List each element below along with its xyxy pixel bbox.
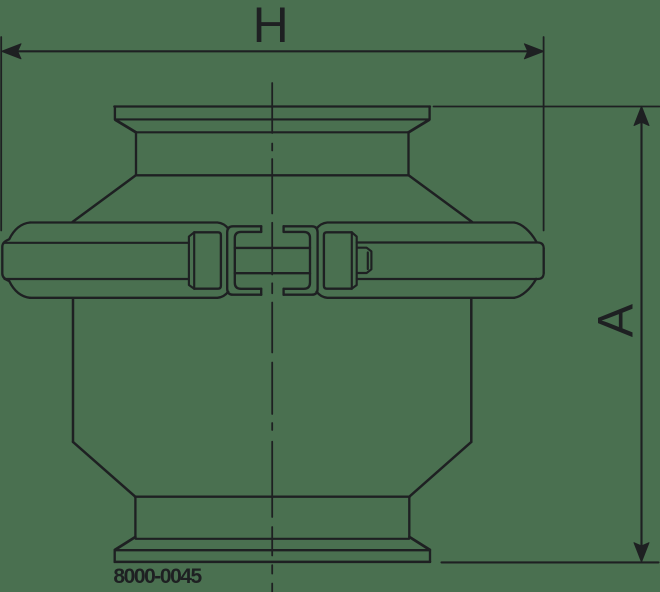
svg-text:A: A	[588, 303, 644, 337]
svg-text:H: H	[253, 0, 289, 53]
svg-text:8000-0045: 8000-0045	[113, 565, 202, 588]
